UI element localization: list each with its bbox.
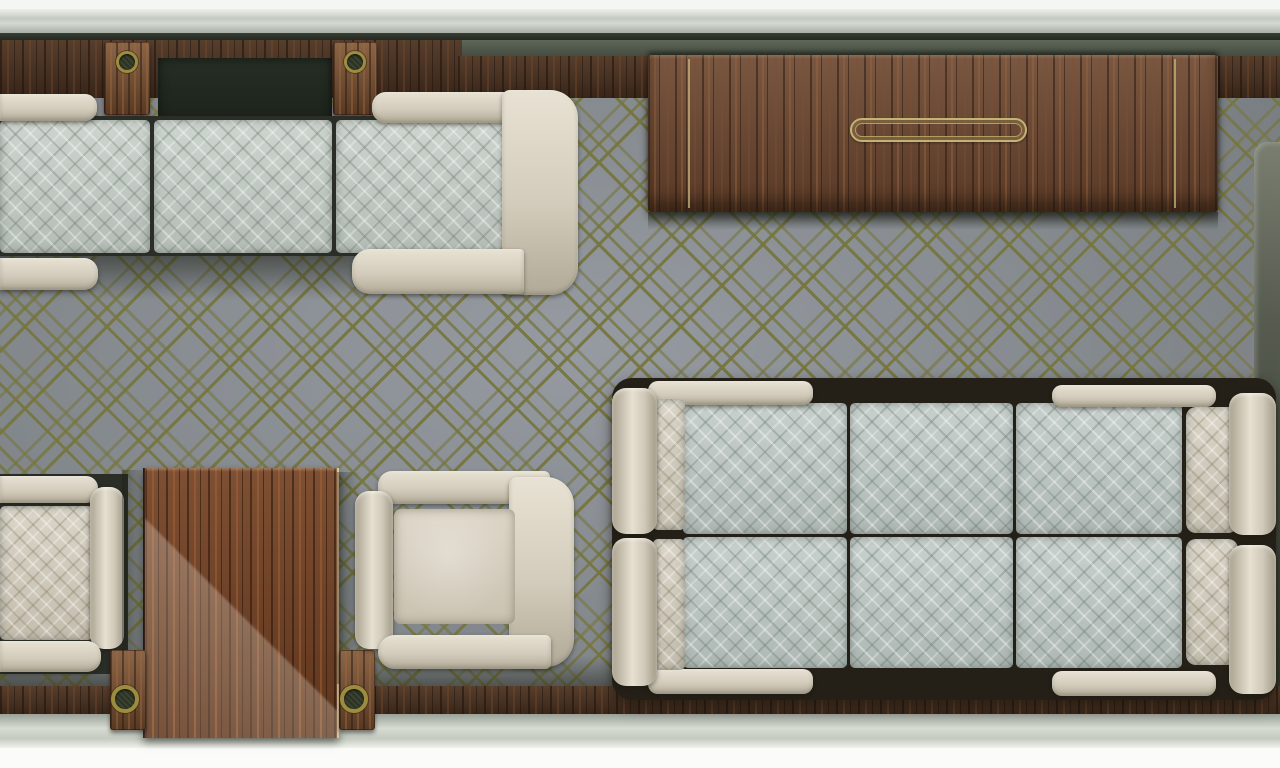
top-bench-front-trim	[0, 258, 98, 290]
bottom-bench-cushion	[0, 506, 93, 640]
bottom-armchair-arm-front	[355, 491, 393, 649]
sofa-side-panel-left-top	[653, 399, 685, 530]
top-wall-recess	[158, 58, 332, 122]
bottom-outer-trim	[0, 748, 1280, 768]
sofa-cushion-top-2	[850, 403, 1013, 534]
sofa-arm-cap-top-right	[1052, 385, 1216, 407]
brass-grommet-bottom-left-icon	[111, 685, 139, 713]
bottom-armchair-seat	[394, 509, 515, 624]
sofa-side-panel-left-bottom	[653, 539, 685, 670]
top-bench-back-trim	[0, 94, 97, 121]
brass-grommet-bottom-right-icon	[340, 685, 368, 713]
top-bench-cushion-3	[336, 120, 512, 253]
side-table	[143, 468, 339, 738]
sofa-arm-roll-right-bottom	[1229, 545, 1276, 694]
brass-grommet-top-right-icon	[344, 51, 366, 73]
bottom-bench-back-trim	[0, 476, 98, 503]
bottom-bench-arm-roll	[90, 487, 124, 649]
sofa-cushion-top-3	[1016, 403, 1182, 534]
top-bench-cushion-2	[154, 120, 332, 253]
sofa-arm-cap-bottom-left	[648, 669, 813, 694]
sofa-arm-roll-right-top	[1229, 393, 1276, 535]
top-wall-reveal	[420, 40, 1280, 56]
sofa-arm-cap-bottom-right	[1052, 671, 1216, 696]
credenza-brass-inlay-right	[1174, 59, 1176, 208]
sofa-cushion-bottom-2	[850, 537, 1013, 668]
sofa-cushion-top-1	[683, 403, 847, 534]
cabin-floorplan	[0, 0, 1280, 768]
credenza-brass-inlay-left	[688, 59, 690, 208]
bottom-armchair-arm-bottom	[378, 635, 551, 669]
sofa-cushion-bottom-3	[1016, 537, 1182, 668]
sofa-cushion-bottom-1	[683, 537, 847, 668]
top-wall-wood-ledge-right	[1218, 56, 1280, 98]
credenza-floor-shadow	[648, 212, 1218, 230]
sofa-arm-roll-left-bottom	[612, 538, 657, 686]
wall-credenza	[648, 55, 1218, 212]
top-armchair-arm-top	[372, 92, 522, 123]
sofa-arm-roll-left-top	[612, 388, 657, 534]
brass-grommet-top-left-icon	[116, 51, 138, 73]
top-fuselage-sill	[0, 9, 1280, 33]
top-outer-trim	[0, 0, 1280, 9]
top-armchair-arm-bottom	[352, 249, 524, 294]
bottom-bench-front-trim	[0, 641, 101, 672]
top-bench-cushion-1	[0, 120, 150, 253]
credenza-recessed-pull	[850, 118, 1027, 142]
top-sill-seam	[0, 33, 1280, 40]
